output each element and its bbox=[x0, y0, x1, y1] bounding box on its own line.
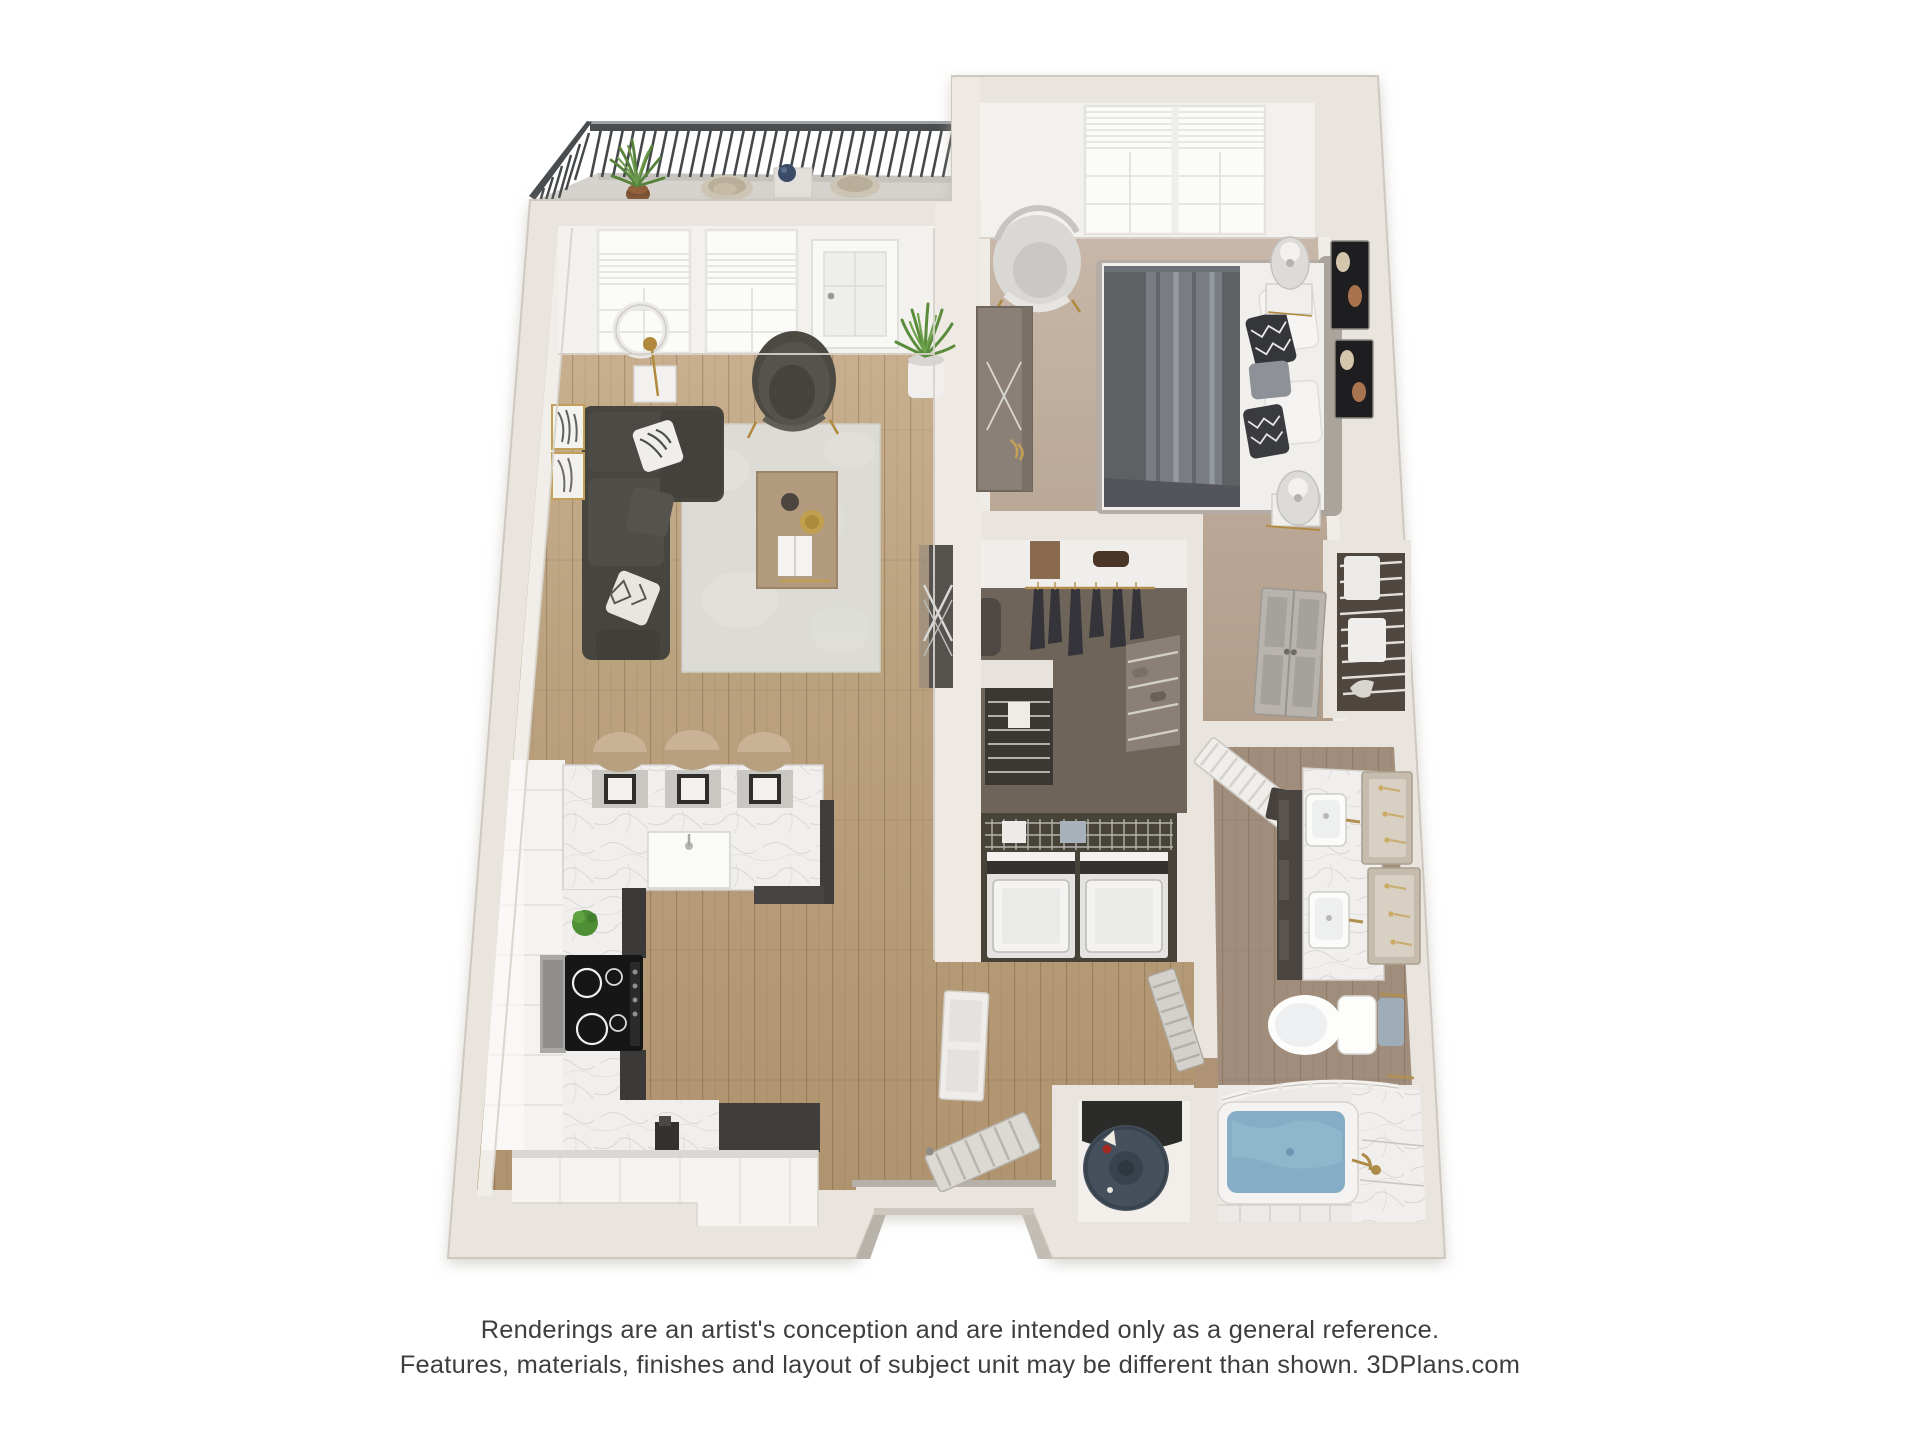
svg-text:Renderings are an artist's con: Renderings are an artist's conception an… bbox=[481, 1316, 1440, 1344]
svg-text:Features, materials, finishes: Features, materials, finishes and layout… bbox=[400, 1351, 1520, 1379]
